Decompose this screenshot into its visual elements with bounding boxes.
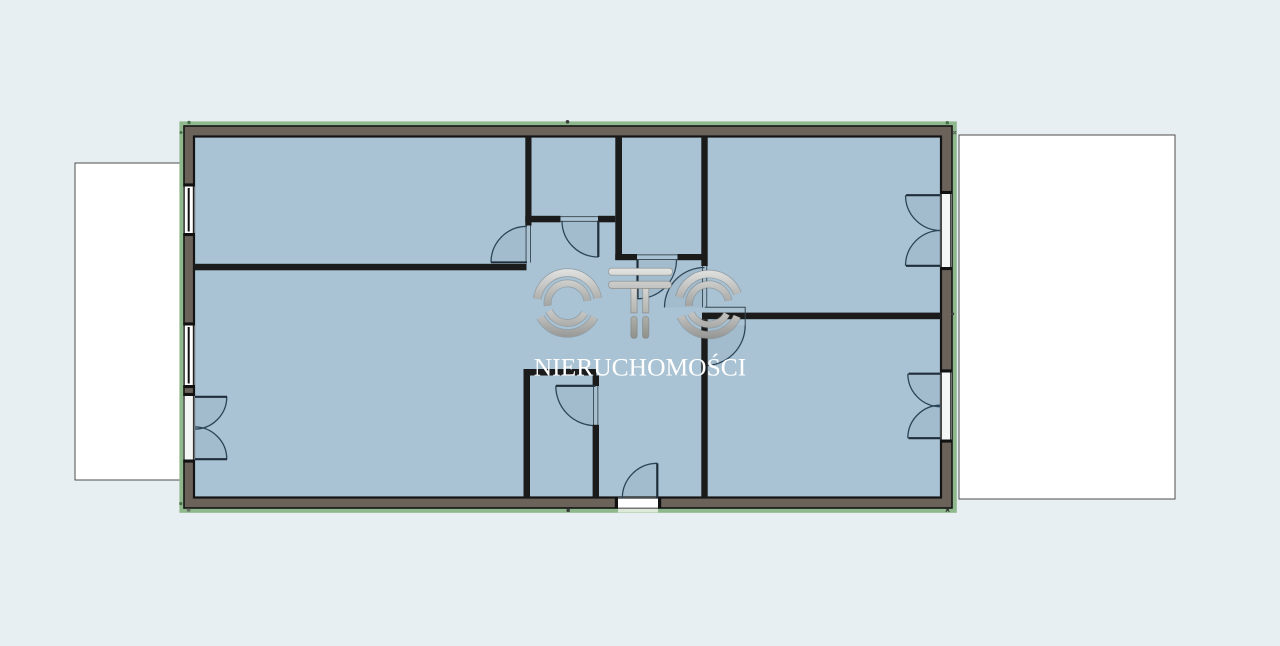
- svg-text:NIERUCHOMOŚCI: NIERUCHOMOŚCI: [534, 353, 747, 382]
